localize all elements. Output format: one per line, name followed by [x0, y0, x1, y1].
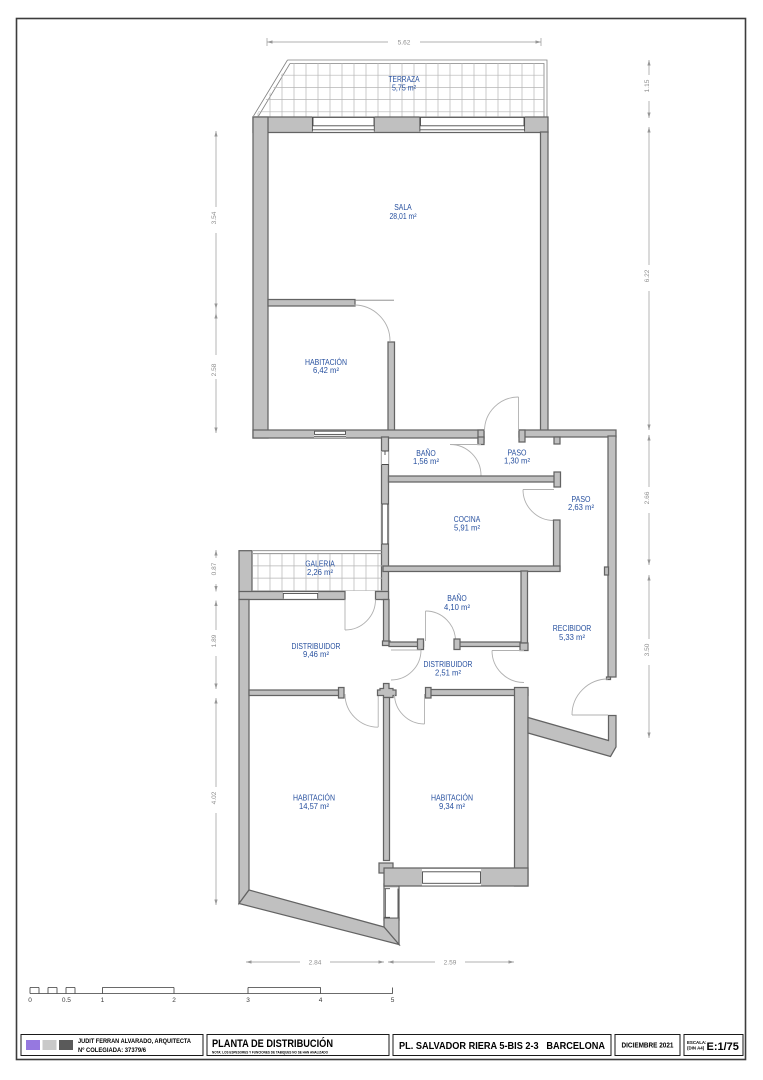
svg-text:1: 1 [101, 997, 105, 1004]
svg-text:6.22: 6.22 [644, 269, 651, 282]
svg-text:5: 5 [391, 997, 395, 1004]
svg-text:RECIBIDOR: RECIBIDOR [553, 624, 592, 633]
svg-text:9,34 m²: 9,34 m² [439, 802, 465, 811]
svg-text:BAÑO: BAÑO [447, 594, 467, 603]
svg-text:2.84: 2.84 [309, 960, 322, 967]
svg-text:PLANTA DE DISTRIBUCIÓN: PLANTA DE DISTRIBUCIÓN [212, 1037, 333, 1050]
svg-text:2,63 m²: 2,63 m² [568, 503, 594, 512]
svg-text:0.87: 0.87 [211, 562, 218, 575]
svg-text:5,91 m²: 5,91 m² [454, 524, 480, 533]
svg-text:28,01 m²: 28,01 m² [390, 212, 417, 221]
svg-text:DICIEMBRE 2021: DICIEMBRE 2021 [622, 1043, 674, 1050]
svg-text:2.66: 2.66 [644, 491, 651, 504]
svg-text:4: 4 [319, 997, 323, 1004]
svg-text:0: 0 [28, 997, 32, 1004]
svg-text:3.50: 3.50 [644, 643, 651, 656]
svg-text:6,42 m²: 6,42 m² [313, 366, 339, 375]
svg-text:PL. SALVADOR RIERA 5-BIS 2-3: PL. SALVADOR RIERA 5-BIS 2-3 BARCELONA [399, 1040, 605, 1052]
svg-text:2: 2 [172, 997, 176, 1004]
svg-text:NOTA: LOS ESPESORES Y FUNCIONE: NOTA: LOS ESPESORES Y FUNCIONES DE TABIQ… [212, 1051, 328, 1055]
svg-text:1,30 m²: 1,30 m² [504, 457, 530, 466]
svg-text:2,26 m²: 2,26 m² [307, 568, 333, 577]
svg-text:14,57 m²: 14,57 m² [299, 802, 329, 811]
svg-text:2,51 m²: 2,51 m² [435, 669, 461, 678]
svg-text:2.58: 2.58 [211, 363, 218, 376]
svg-text:JUDIT FERRAN ALVARADO, ARQUITE: JUDIT FERRAN ALVARADO, ARQUITECTA [78, 1038, 191, 1045]
svg-text:1.15: 1.15 [644, 79, 651, 92]
svg-text:5.62: 5.62 [398, 40, 411, 47]
svg-text:5,33 m²: 5,33 m² [559, 633, 585, 642]
svg-text:SALA: SALA [394, 203, 412, 212]
svg-text:(DIN A4): (DIN A4) [687, 1046, 705, 1051]
svg-text:1,56 m²: 1,56 m² [413, 457, 439, 466]
svg-text:1.89: 1.89 [211, 634, 218, 647]
svg-text:0.5: 0.5 [62, 997, 71, 1004]
svg-text:9,46 m²: 9,46 m² [303, 650, 329, 659]
svg-text:5,75 m²: 5,75 m² [392, 84, 416, 93]
svg-text:E:1/75: E:1/75 [707, 1041, 739, 1053]
svg-text:3: 3 [246, 997, 250, 1004]
svg-text:4,10 m²: 4,10 m² [444, 603, 470, 612]
svg-text:2.59: 2.59 [444, 960, 457, 967]
svg-text:4.02: 4.02 [211, 791, 218, 804]
svg-text:Nº COLEGIADA: 37379/6: Nº COLEGIADA: 37379/6 [78, 1047, 147, 1054]
svg-text:3.54: 3.54 [211, 211, 218, 224]
svg-text:ESCALA:: ESCALA: [687, 1040, 707, 1045]
